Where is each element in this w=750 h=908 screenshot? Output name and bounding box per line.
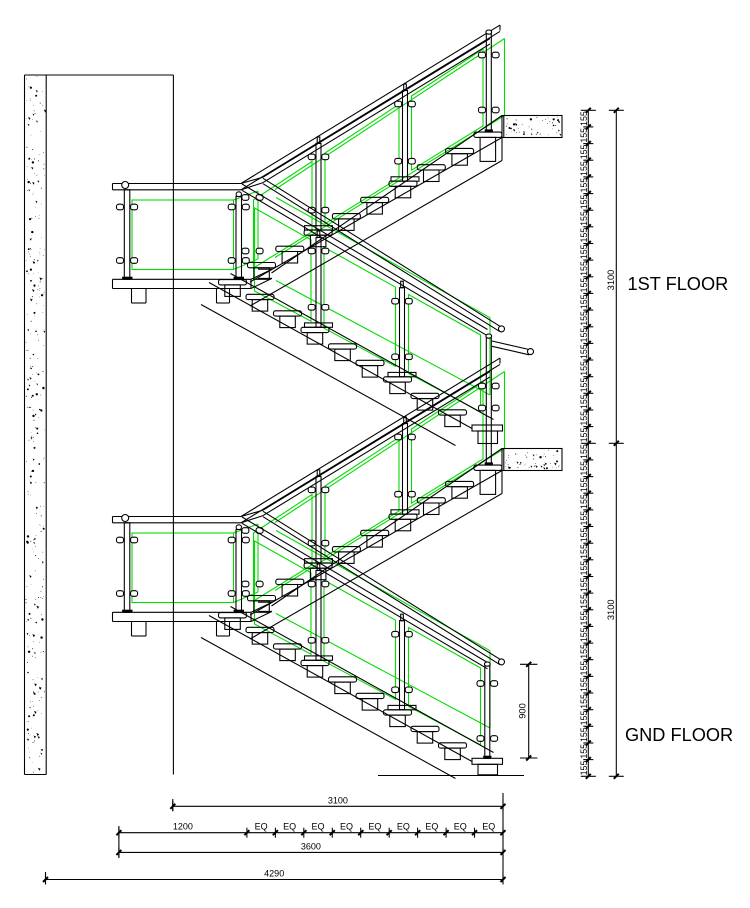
svg-text:4290: 4290 bbox=[264, 869, 284, 879]
svg-text:155: 155 bbox=[579, 228, 589, 243]
svg-text:155: 155 bbox=[579, 477, 589, 492]
svg-text:155: 155 bbox=[579, 627, 589, 642]
svg-text:GND FLOOR: GND FLOOR bbox=[625, 725, 733, 745]
svg-text:EQ: EQ bbox=[340, 822, 353, 832]
svg-text:155: 155 bbox=[579, 361, 589, 376]
svg-text:155: 155 bbox=[579, 261, 589, 276]
svg-text:3100: 3100 bbox=[606, 270, 616, 291]
svg-text:155: 155 bbox=[579, 311, 589, 326]
svg-text:EQ: EQ bbox=[425, 822, 438, 832]
svg-text:155: 155 bbox=[579, 611, 589, 626]
svg-text:155: 155 bbox=[579, 544, 589, 559]
svg-text:155: 155 bbox=[579, 577, 589, 592]
svg-text:155: 155 bbox=[579, 161, 589, 176]
svg-text:155: 155 bbox=[579, 511, 589, 526]
svg-text:155: 155 bbox=[579, 727, 589, 742]
svg-text:155: 155 bbox=[579, 394, 589, 409]
svg-text:155: 155 bbox=[579, 144, 589, 159]
svg-text:155: 155 bbox=[579, 461, 589, 476]
svg-text:155: 155 bbox=[579, 278, 589, 293]
svg-text:155: 155 bbox=[579, 378, 589, 393]
svg-text:155: 155 bbox=[579, 644, 589, 659]
svg-text:155: 155 bbox=[579, 711, 589, 726]
svg-text:155: 155 bbox=[579, 111, 589, 126]
svg-text:155: 155 bbox=[579, 128, 589, 143]
svg-text:155: 155 bbox=[579, 561, 589, 576]
svg-text:EQ: EQ bbox=[255, 822, 268, 832]
svg-text:3100: 3100 bbox=[328, 795, 348, 805]
svg-text:155: 155 bbox=[579, 244, 589, 259]
svg-text:EQ: EQ bbox=[454, 822, 467, 832]
svg-text:155: 155 bbox=[579, 494, 589, 509]
svg-text:155: 155 bbox=[579, 411, 589, 426]
svg-text:155: 155 bbox=[579, 444, 589, 459]
svg-text:EQ: EQ bbox=[283, 822, 296, 832]
svg-text:1ST FLOOR: 1ST FLOOR bbox=[628, 274, 729, 294]
svg-text:EQ: EQ bbox=[482, 822, 495, 832]
svg-text:155: 155 bbox=[579, 194, 589, 209]
svg-text:155: 155 bbox=[579, 694, 589, 709]
svg-text:1200: 1200 bbox=[173, 822, 193, 832]
svg-text:900: 900 bbox=[518, 703, 528, 719]
svg-text:155: 155 bbox=[579, 344, 589, 359]
svg-text:155: 155 bbox=[579, 211, 589, 226]
svg-text:155: 155 bbox=[579, 527, 589, 542]
svg-text:155: 155 bbox=[579, 178, 589, 193]
svg-text:155: 155 bbox=[579, 328, 589, 343]
svg-text:EQ: EQ bbox=[311, 822, 324, 832]
svg-text:155: 155 bbox=[579, 428, 589, 443]
svg-text:EQ: EQ bbox=[397, 822, 410, 832]
svg-text:3100: 3100 bbox=[606, 599, 616, 620]
svg-text:EQ: EQ bbox=[368, 822, 381, 832]
svg-text:155: 155 bbox=[579, 294, 589, 309]
svg-text:155: 155 bbox=[579, 594, 589, 609]
svg-text:155: 155 bbox=[579, 661, 589, 676]
svg-text:155: 155 bbox=[579, 761, 589, 776]
svg-text:155: 155 bbox=[579, 677, 589, 692]
svg-text:3600: 3600 bbox=[301, 841, 321, 851]
svg-text:155: 155 bbox=[579, 744, 589, 759]
